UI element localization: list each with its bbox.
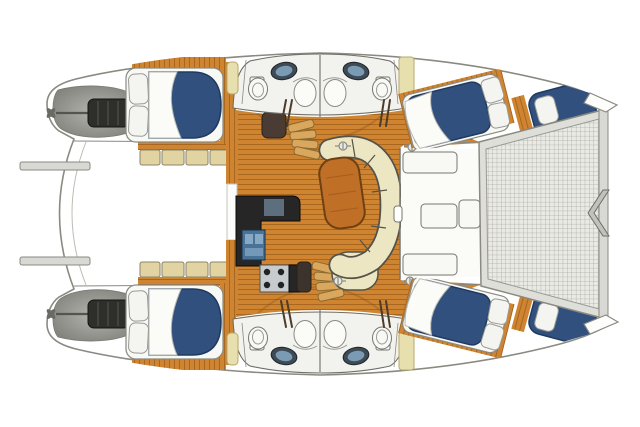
cockpit-bench <box>403 152 457 173</box>
cockpit-bench <box>421 204 457 228</box>
trampoline-mesh <box>486 119 599 309</box>
davit-arm <box>20 162 90 170</box>
davit-arm <box>20 257 90 265</box>
steps-cabinet <box>297 262 311 292</box>
floorplan-image <box>0 0 640 427</box>
cockpit-bench <box>403 254 457 275</box>
stove <box>260 265 289 292</box>
forward-cockpit <box>394 142 480 285</box>
catamaran-floorplan <box>0 0 640 427</box>
cockpit-bench <box>459 200 480 228</box>
saloon-door-handle <box>394 206 402 222</box>
forward-crossbeam <box>599 105 608 323</box>
galley-sink <box>242 230 265 260</box>
counter-appliance <box>264 199 284 216</box>
